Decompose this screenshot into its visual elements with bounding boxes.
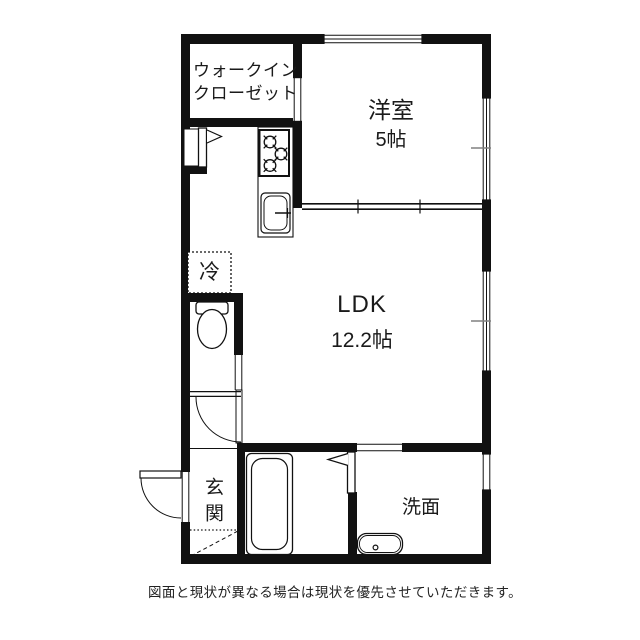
wall-bottom: [181, 554, 491, 564]
ldk-label: LDK: [302, 291, 422, 319]
opening-ldk-hall: [234, 355, 243, 390]
floorplan-drawing: [0, 0, 640, 640]
window-ldk-right: [471, 270, 491, 372]
window-western-room-top: [323, 34, 423, 44]
opening-entrance: [181, 472, 190, 522]
western-room-size-label: 5帖: [330, 123, 452, 152]
wall-toilet-top: [181, 293, 243, 302]
washbasin-drain: [373, 545, 378, 550]
closet-door-recess: [184, 129, 200, 166]
bathtub: [247, 454, 293, 555]
closet-door-leaf: [199, 128, 207, 167]
fridge-space-label: 冷: [188, 252, 231, 293]
wall-bath-washroom-divider: [348, 492, 357, 554]
entrance-door-leaf: [140, 471, 181, 478]
washbasin: [358, 534, 403, 555]
entrance-label: 玄関: [199, 477, 226, 529]
wall-toilet-right: [234, 300, 243, 355]
entrance-diagonal-dashed-line: [191, 531, 238, 556]
toilet-bowl: [198, 310, 227, 349]
sliding-door-western-ldk: [302, 200, 482, 214]
wall-entrance-right: [237, 443, 245, 564]
wall-ldk-bottom-right: [402, 443, 482, 452]
bath-door-leaf: [348, 452, 356, 493]
disclaimer-text: 図面と現状が異なる場合は現状を優先させていただきます。: [35, 581, 635, 601]
bath-door-swing-triangle: [328, 454, 348, 466]
floorplan-canvas: ウォークイン クローゼット 洋室 5帖 LDK 12.2帖 冷 玄関 洗面 図面…: [0, 0, 640, 640]
walk-in-closet-label: ウォークイン クローゼット: [193, 59, 298, 105]
entrance-door-arc: [141, 478, 181, 518]
closet-door: [184, 128, 222, 167]
kitchen-sink: [261, 193, 291, 233]
toilet-door: [190, 392, 241, 442]
washroom-label: 洗面: [381, 492, 461, 519]
window-western-room-right: [471, 97, 491, 201]
western-room-label: 洋室: [330, 91, 452, 125]
ldk-size-label: 12.2帖: [302, 324, 422, 354]
window-washroom-right: [482, 453, 491, 491]
closet-door-swing-triangle: [207, 130, 222, 143]
wall-closet-bottom: [181, 118, 302, 127]
wall-bath-top: [243, 443, 357, 452]
kitchen-fixtures: [258, 127, 293, 237]
opening-washroom-top: [357, 443, 402, 452]
bath-door: [328, 452, 355, 493]
entrance-door: [140, 471, 181, 518]
toilet-fixture: [196, 302, 228, 349]
hall-thin-partition: [236, 390, 242, 443]
toilet-door-arc: [196, 397, 241, 442]
